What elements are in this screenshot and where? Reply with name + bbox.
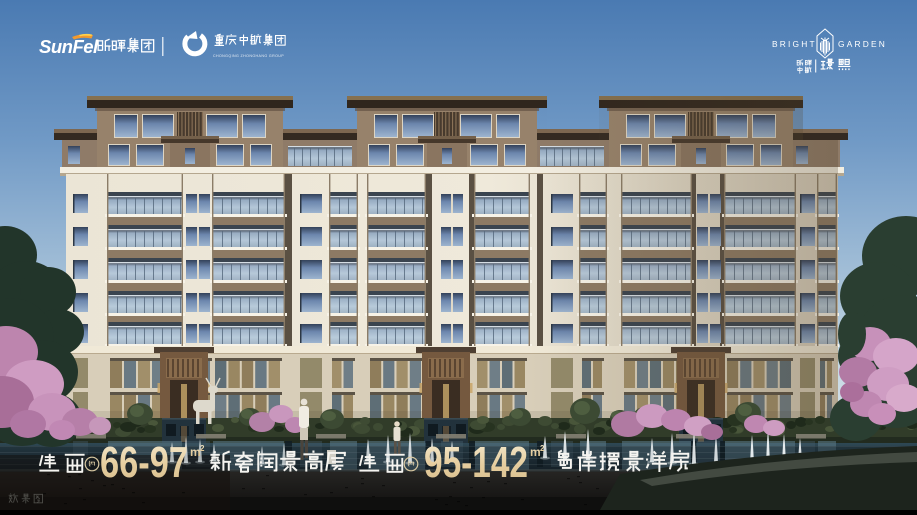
svg-text:BRIGHT: BRIGHT <box>772 39 817 49</box>
svg-text:66-97: 66-97 <box>100 438 188 487</box>
svg-text:95-142: 95-142 <box>424 438 528 487</box>
svg-text:2: 2 <box>540 444 545 453</box>
svg-text:2: 2 <box>200 444 205 453</box>
svg-text:CHONGQING ZHONGHANG GROUP: CHONGQING ZHONGHANG GROUP <box>213 54 284 58</box>
svg-text:SunFel: SunFel <box>39 36 99 57</box>
svg-text:GARDEN: GARDEN <box>838 39 887 49</box>
